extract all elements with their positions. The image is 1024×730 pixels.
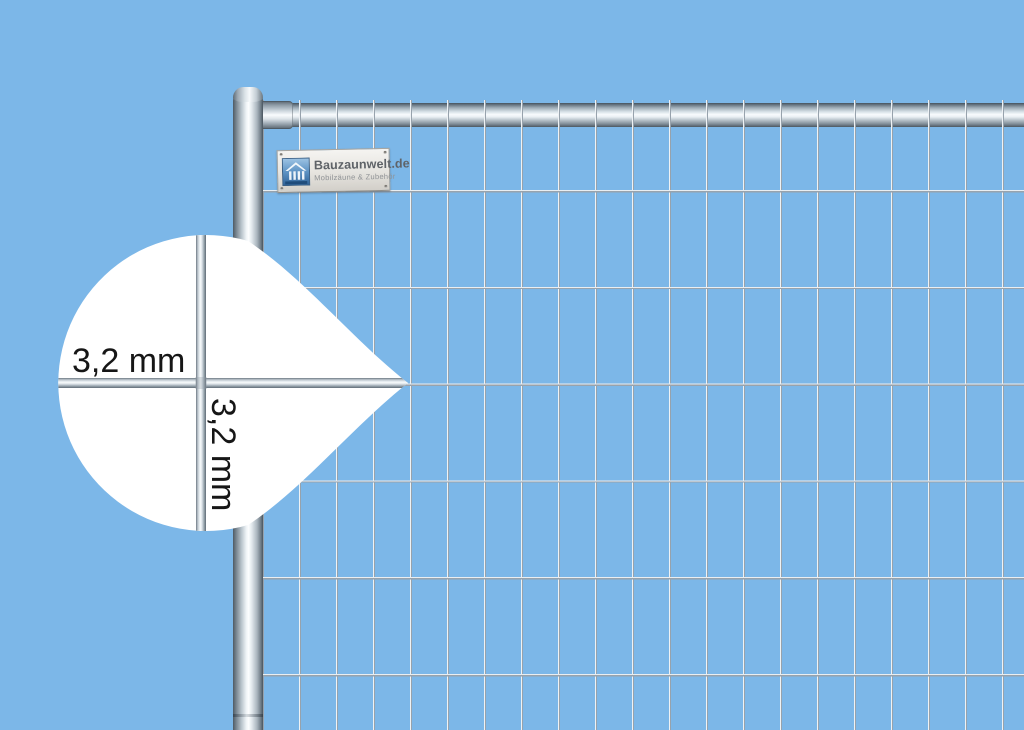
screw-icon (280, 153, 283, 156)
brand-title: Bauzaunwelt.de (314, 158, 385, 173)
rail-post-joint (259, 101, 293, 129)
brand-subtitle: Mobilzäune & Zubehör (314, 173, 385, 182)
vertical-wire-dimension-label: 3,2 mm (204, 398, 242, 511)
screw-icon (280, 187, 283, 190)
house-over-fence-icon (282, 157, 311, 186)
wire-diameter-callout: 3,2 mm 3,2 mm (30, 218, 430, 548)
screw-icon (384, 185, 387, 188)
screw-icon (384, 151, 387, 154)
horizontal-wire-dimension-label: 3,2 mm (72, 342, 185, 380)
product-image-fence-panel: Bauzaunwelt.de Mobilzäune & Zubehör (0, 0, 1024, 730)
wire-weld-joint (195, 377, 207, 389)
brand-label-plate: Bauzaunwelt.de Mobilzäune & Zubehör (277, 148, 391, 193)
brand-label-texts: Bauzaunwelt.de Mobilzäune & Zubehör (314, 158, 385, 182)
